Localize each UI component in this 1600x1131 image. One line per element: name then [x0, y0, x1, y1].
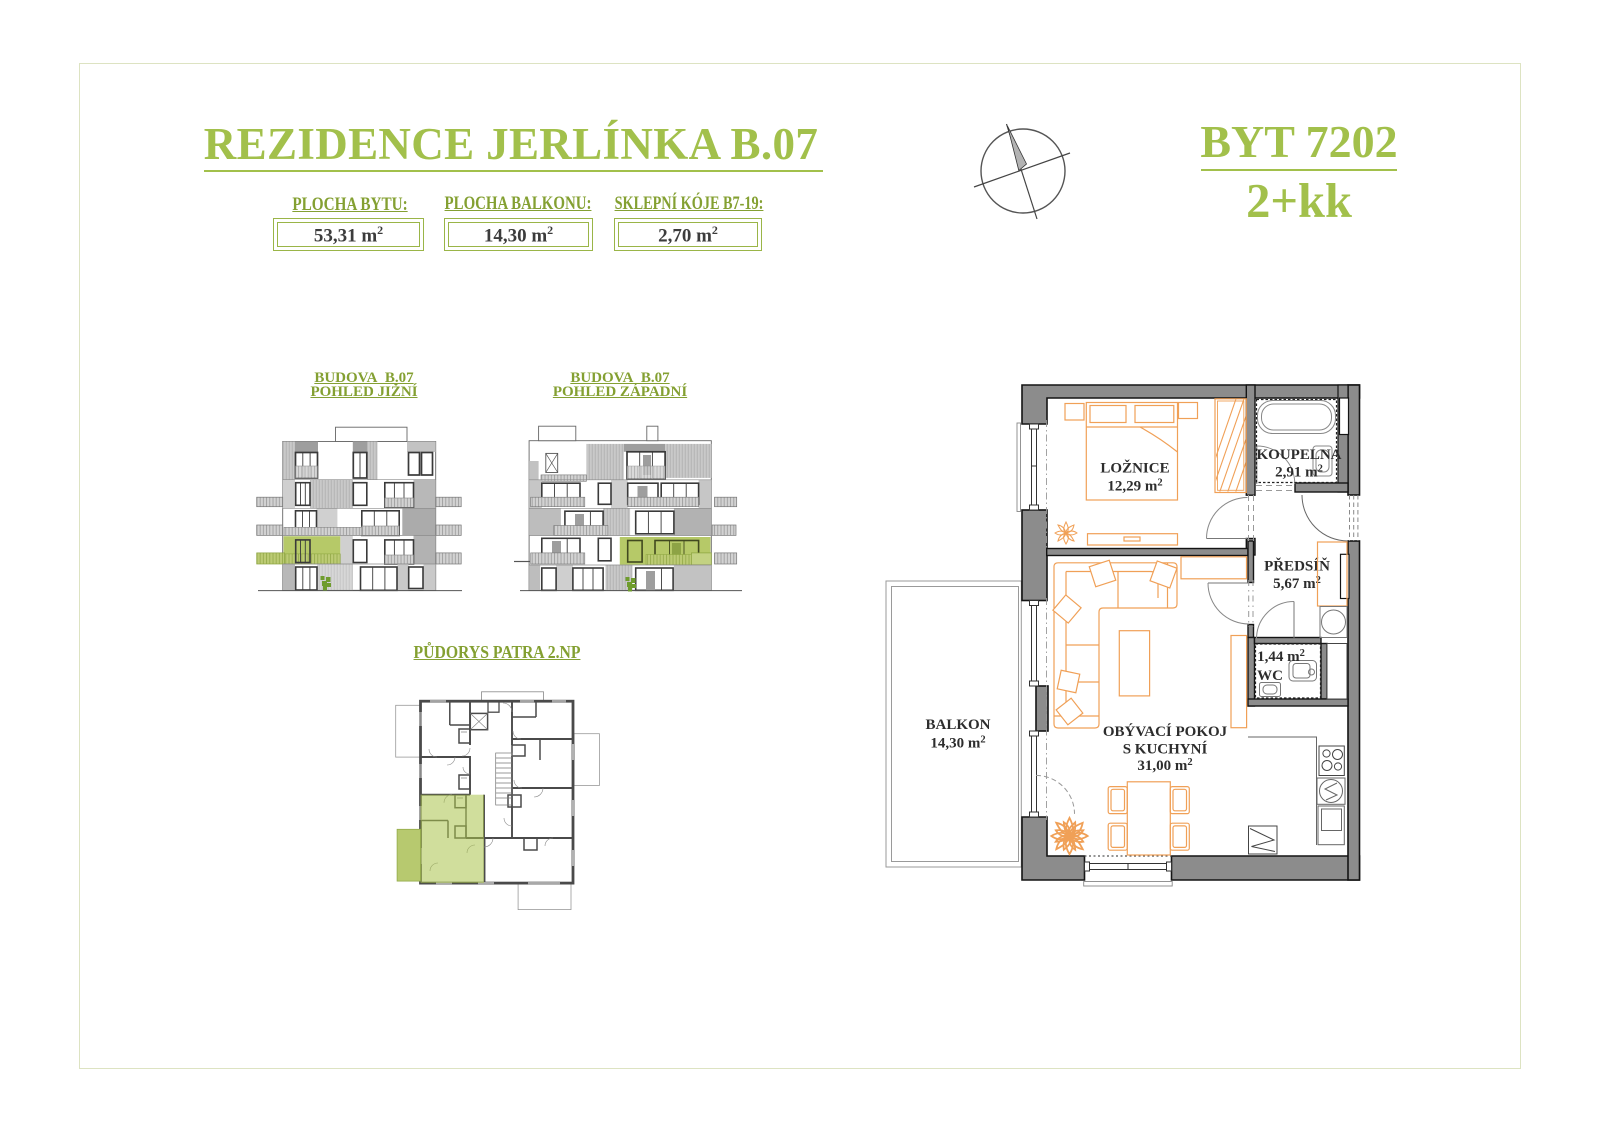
svg-text:5,67 m2: 5,67 m2: [1273, 575, 1321, 592]
svg-text:2,91 m2: 2,91 m2: [1275, 464, 1323, 481]
svg-text:31,00 m2: 31,00 m2: [1137, 757, 1192, 774]
svg-text:14,30 m2: 14,30 m2: [930, 735, 985, 752]
svg-text:BALKON: BALKON: [925, 717, 990, 733]
svg-text:KOUPELNA: KOUPELNA: [1256, 447, 1341, 463]
svg-text:1,44 m2: 1,44 m2: [1257, 648, 1305, 665]
svg-text:OBÝVACÍ POKOJ: OBÝVACÍ POKOJ: [1103, 723, 1228, 740]
svg-text:S KUCHYNÍ: S KUCHYNÍ: [1123, 741, 1208, 758]
svg-text:PŘEDSÍŇ: PŘEDSÍŇ: [1264, 558, 1330, 575]
svg-text:WC: WC: [1257, 668, 1283, 684]
svg-text:12,29 m2: 12,29 m2: [1107, 478, 1162, 495]
svg-text:LOŽNICE: LOŽNICE: [1100, 460, 1169, 477]
